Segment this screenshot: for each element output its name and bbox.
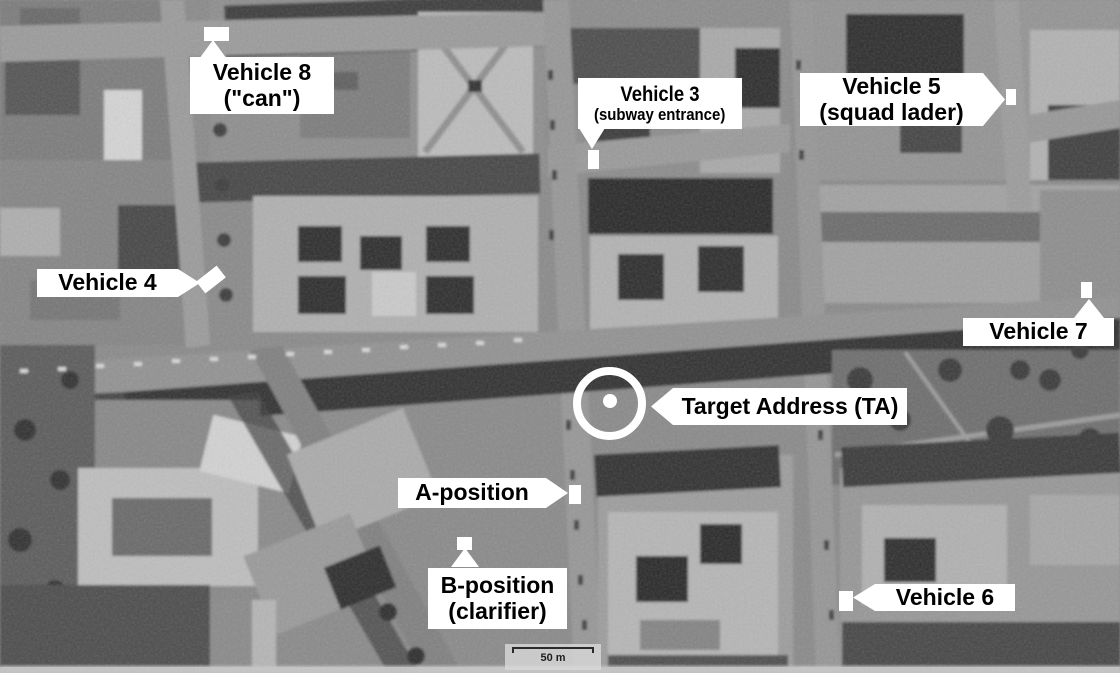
vehicle8-label-line1: Vehicle 8 — [213, 60, 311, 85]
vehicle6-callout: Vehicle 6 — [853, 584, 1015, 611]
vehicle3-label-line2: (subway entrance) — [594, 106, 725, 125]
vehicle6-marker[interactable] — [839, 591, 853, 611]
target-address-center-dot — [603, 394, 617, 408]
vehicle3-callout: Vehicle 3 (subway entrance) — [578, 78, 742, 129]
vehicle8-callout: Vehicle 8 ("can") — [190, 57, 334, 114]
b-position-callout-pointer — [451, 548, 479, 567]
a-position-callout: A-position — [398, 478, 568, 508]
b-position-label-line2: (clarifier) — [448, 599, 546, 624]
vehicle5-marker[interactable] — [1006, 89, 1016, 105]
vehicle5-label-line2: (squad lader) — [819, 100, 963, 125]
vehicle7-marker[interactable] — [1081, 282, 1092, 298]
b-position-callout: B-position (clarifier) — [428, 568, 567, 629]
vehicle7-label: Vehicle 7 — [989, 319, 1087, 344]
scale-bar: 50 m — [505, 644, 601, 670]
b-position-marker[interactable] — [457, 537, 472, 550]
vehicle5-callout: Vehicle 5 (squad lader) — [800, 73, 1005, 126]
scale-bar-label: 50 m — [540, 652, 565, 664]
annotated-aerial-map: Vehicle 8 ("can") Vehicle 3 (subway entr… — [0, 0, 1120, 673]
vehicle3-callout-pointer — [579, 128, 605, 149]
vehicle8-marker[interactable] — [204, 27, 229, 41]
target-address-label: Target Address (TA) — [682, 394, 899, 419]
vehicle4-callout: Vehicle 4 — [37, 269, 200, 297]
a-position-label: A-position — [415, 480, 529, 505]
vehicle8-label-line2: ("can") — [224, 86, 301, 111]
vehicle3-label-line1: Vehicle 3 — [620, 83, 699, 106]
vehicle7-callout: Vehicle 7 — [963, 318, 1114, 346]
vehicle6-label: Vehicle 6 — [896, 585, 994, 610]
vehicle5-label-line1: Vehicle 5 — [842, 74, 940, 99]
target-address-callout: Target Address (TA) — [651, 388, 907, 425]
vehicle4-label: Vehicle 4 — [58, 270, 156, 295]
vehicle7-callout-pointer — [1074, 299, 1104, 318]
scale-bar-line — [512, 647, 594, 653]
b-position-label-line1: B-position — [441, 573, 555, 598]
vehicle3-marker[interactable] — [588, 150, 599, 169]
a-position-marker[interactable] — [569, 485, 581, 504]
